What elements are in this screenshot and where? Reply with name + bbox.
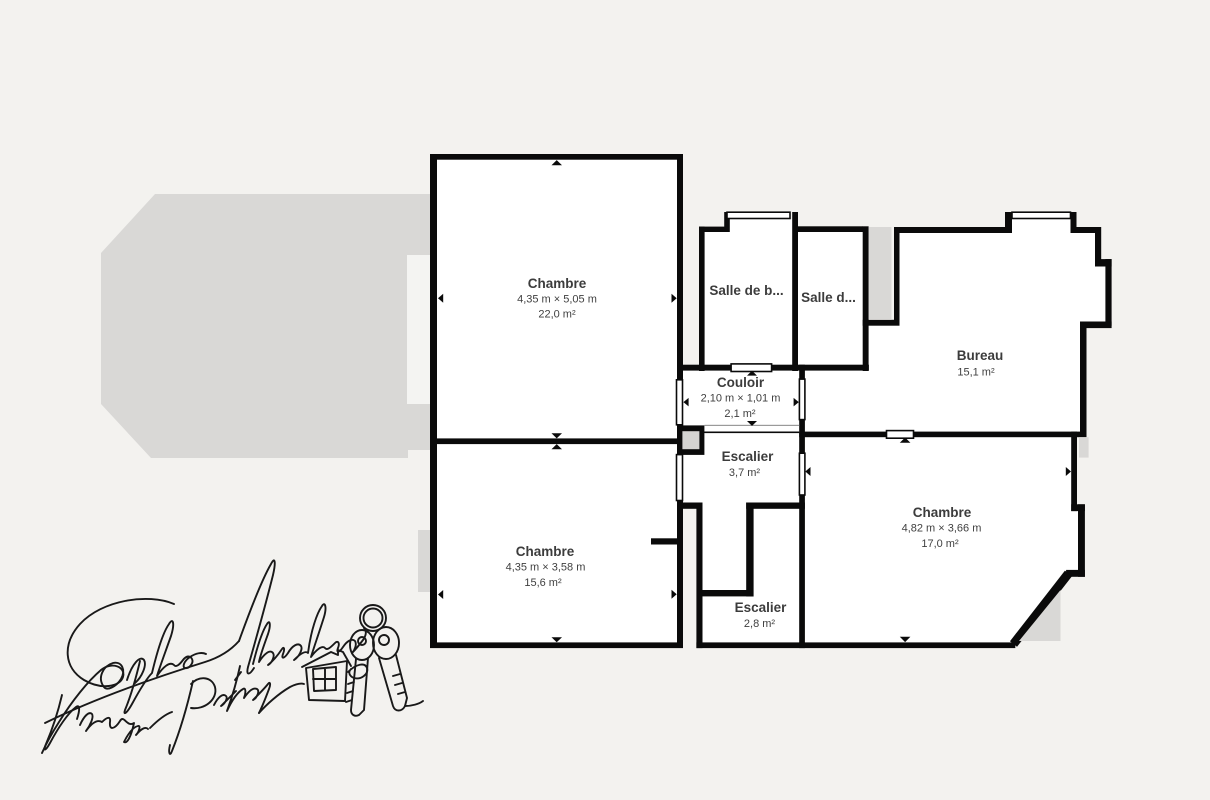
svg-text:4,35 m × 3,58 m: 4,35 m × 3,58 m <box>506 562 586 574</box>
svg-text:2,10 m × 1,01 m: 2,10 m × 1,01 m <box>701 393 781 405</box>
svg-text:Escalier: Escalier <box>722 449 775 464</box>
svg-text:4,82 m × 3,66 m: 4,82 m × 3,66 m <box>902 523 982 535</box>
svg-text:Couloir: Couloir <box>717 375 765 390</box>
svg-text:2,1 m²: 2,1 m² <box>724 408 756 420</box>
svg-text:15,6 m²: 15,6 m² <box>524 577 562 589</box>
svg-text:17,0 m²: 17,0 m² <box>921 538 959 550</box>
svg-text:4,35 m × 5,05 m: 4,35 m × 5,05 m <box>517 294 597 306</box>
svg-text:Chambre: Chambre <box>913 505 972 520</box>
svg-text:Escalier: Escalier <box>735 600 788 615</box>
svg-text:Bureau: Bureau <box>957 348 1004 363</box>
svg-text:Chambre: Chambre <box>516 544 575 559</box>
svg-text:3,7 m²: 3,7 m² <box>729 467 761 479</box>
svg-text:Salle d...: Salle d... <box>801 290 856 305</box>
svg-text:15,1 m²: 15,1 m² <box>957 367 995 379</box>
svg-text:22,0 m²: 22,0 m² <box>538 309 576 321</box>
svg-text:Chambre: Chambre <box>528 276 587 291</box>
svg-text:Salle de b...: Salle de b... <box>709 283 783 298</box>
svg-text:2,8 m²: 2,8 m² <box>744 618 776 630</box>
